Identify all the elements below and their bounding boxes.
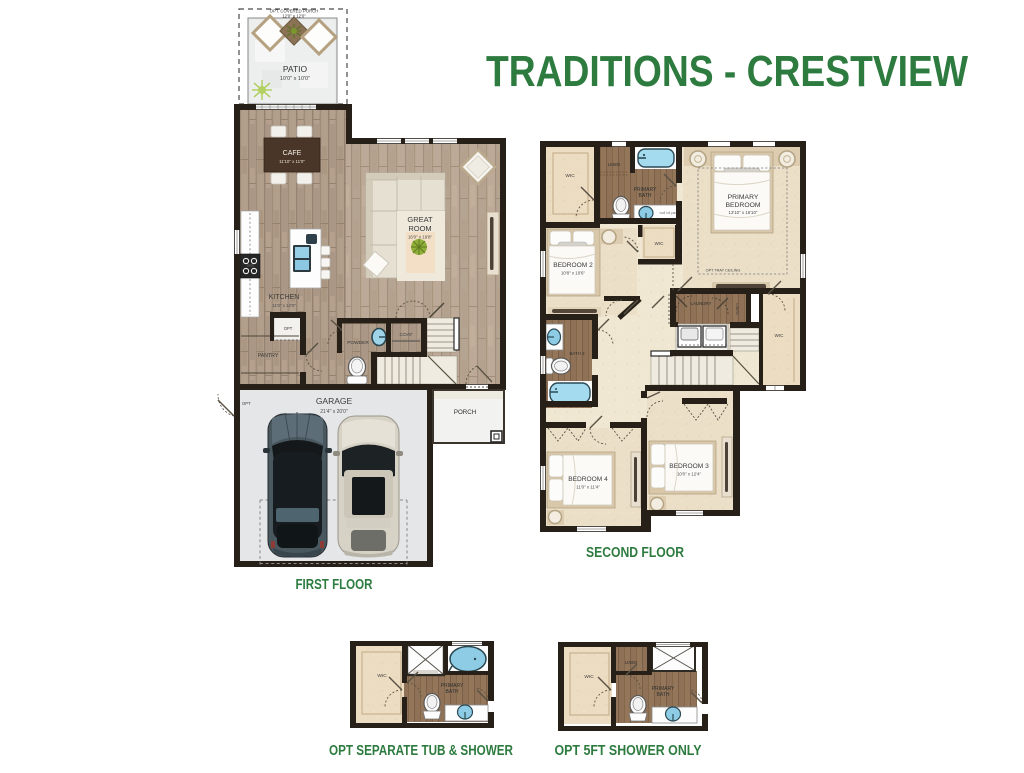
svg-text:WIC: WIC bbox=[377, 673, 387, 679]
svg-text:PATIO: PATIO bbox=[283, 64, 308, 74]
svg-text:BATH 2: BATH 2 bbox=[569, 351, 585, 356]
svg-text:FIRST FLOOR: FIRST FLOOR bbox=[296, 577, 373, 593]
svg-text:BEDROOM 4: BEDROOM 4 bbox=[568, 476, 608, 483]
svg-text:11'10" x 11'0": 11'10" x 11'0" bbox=[279, 159, 305, 164]
svg-text:16'0" x 19'8": 16'0" x 19'8" bbox=[408, 235, 433, 240]
svg-text:GREAT: GREAT bbox=[407, 215, 433, 224]
svg-text:OPT TRAY CEILING: OPT TRAY CEILING bbox=[706, 269, 741, 273]
svg-text:11'0" x 12'0": 11'0" x 12'0" bbox=[272, 303, 296, 308]
svg-text:ROOM: ROOM bbox=[408, 224, 431, 233]
svg-text:WIC: WIC bbox=[655, 241, 665, 246]
svg-text:BEDROOM 3: BEDROOM 3 bbox=[669, 463, 709, 470]
svg-text:PRIMARY: PRIMARY bbox=[728, 194, 759, 201]
svg-text:13'10" x 16'10": 13'10" x 16'10" bbox=[729, 210, 758, 215]
svg-text:10'8" x 10'6": 10'8" x 10'6" bbox=[561, 271, 586, 276]
svg-text:CAFE: CAFE bbox=[283, 150, 302, 157]
svg-text:21'4" x 20'0": 21'4" x 20'0" bbox=[320, 409, 348, 415]
svg-text:10'0" x 10'0": 10'0" x 10'0" bbox=[280, 76, 310, 82]
svg-text:BATH: BATH bbox=[639, 193, 652, 199]
svg-text:POWDER: POWDER bbox=[347, 340, 369, 346]
svg-text:wall full pan: wall full pan bbox=[660, 211, 677, 215]
svg-text:LINEN: LINEN bbox=[608, 162, 620, 167]
svg-text:OPT 5FT SHOWER ONLY: OPT 5FT SHOWER ONLY bbox=[555, 743, 702, 759]
svg-text:WIC: WIC bbox=[584, 674, 594, 680]
svg-text:OPT: OPT bbox=[284, 326, 293, 331]
svg-text:COAT: COAT bbox=[400, 332, 413, 338]
svg-text:TRADITIONS - CRESTVIEW: TRADITIONS - CRESTVIEW bbox=[486, 47, 968, 96]
svg-text:LINEN: LINEN bbox=[625, 660, 637, 665]
svg-text:WIC: WIC bbox=[565, 173, 575, 179]
svg-text:KITCHEN: KITCHEN bbox=[269, 294, 300, 301]
svg-text:LINEN: LINEN bbox=[735, 303, 739, 314]
svg-text:GARAGE: GARAGE bbox=[316, 396, 353, 406]
svg-text:OPT: OPT bbox=[242, 401, 251, 406]
svg-text:PORCH: PORCH bbox=[454, 409, 476, 416]
svg-text:BEDROOM 2: BEDROOM 2 bbox=[553, 262, 593, 269]
svg-text:BEDROOM: BEDROOM bbox=[725, 202, 760, 209]
svg-text:PANTRY: PANTRY bbox=[258, 353, 279, 359]
svg-text:LAUNDRY: LAUNDRY bbox=[691, 301, 712, 306]
svg-text:WIC: WIC bbox=[775, 333, 785, 338]
svg-text:OPT SEPARATE TUB & SHOWER: OPT SEPARATE TUB & SHOWER bbox=[329, 743, 513, 759]
svg-text:11'0" x 11'4": 11'0" x 11'4" bbox=[576, 485, 600, 490]
svg-text:10'0" x 12'4": 10'0" x 12'4" bbox=[677, 472, 702, 477]
svg-text:BATH: BATH bbox=[657, 692, 670, 698]
svg-text:BATH: BATH bbox=[446, 689, 459, 695]
svg-text:SECOND FLOOR: SECOND FLOOR bbox=[586, 545, 684, 561]
